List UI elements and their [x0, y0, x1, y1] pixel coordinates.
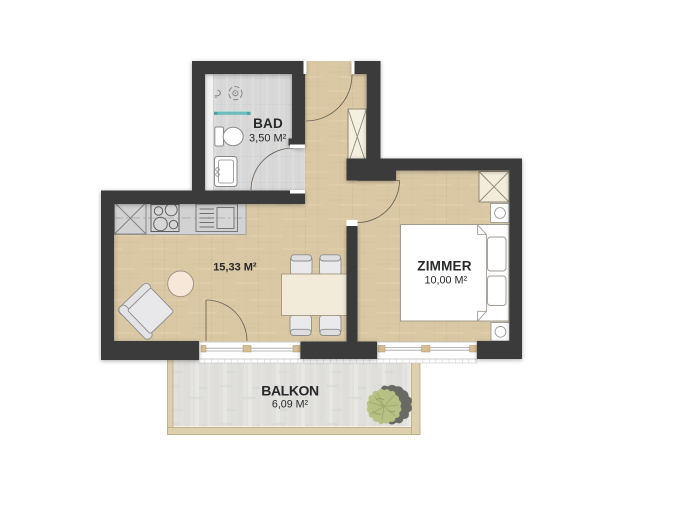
- svg-text:BALKON: BALKON: [261, 383, 319, 399]
- svg-text:15,33 M²: 15,33 M²: [213, 262, 257, 274]
- svg-text:ZIMMER: ZIMMER: [417, 258, 471, 273]
- svg-text:6,09 M²: 6,09 M²: [272, 398, 309, 410]
- svg-text:BAD: BAD: [253, 116, 283, 131]
- svg-text:10,00 M²: 10,00 M²: [424, 275, 467, 287]
- svg-text:3,50 M²: 3,50 M²: [249, 133, 287, 145]
